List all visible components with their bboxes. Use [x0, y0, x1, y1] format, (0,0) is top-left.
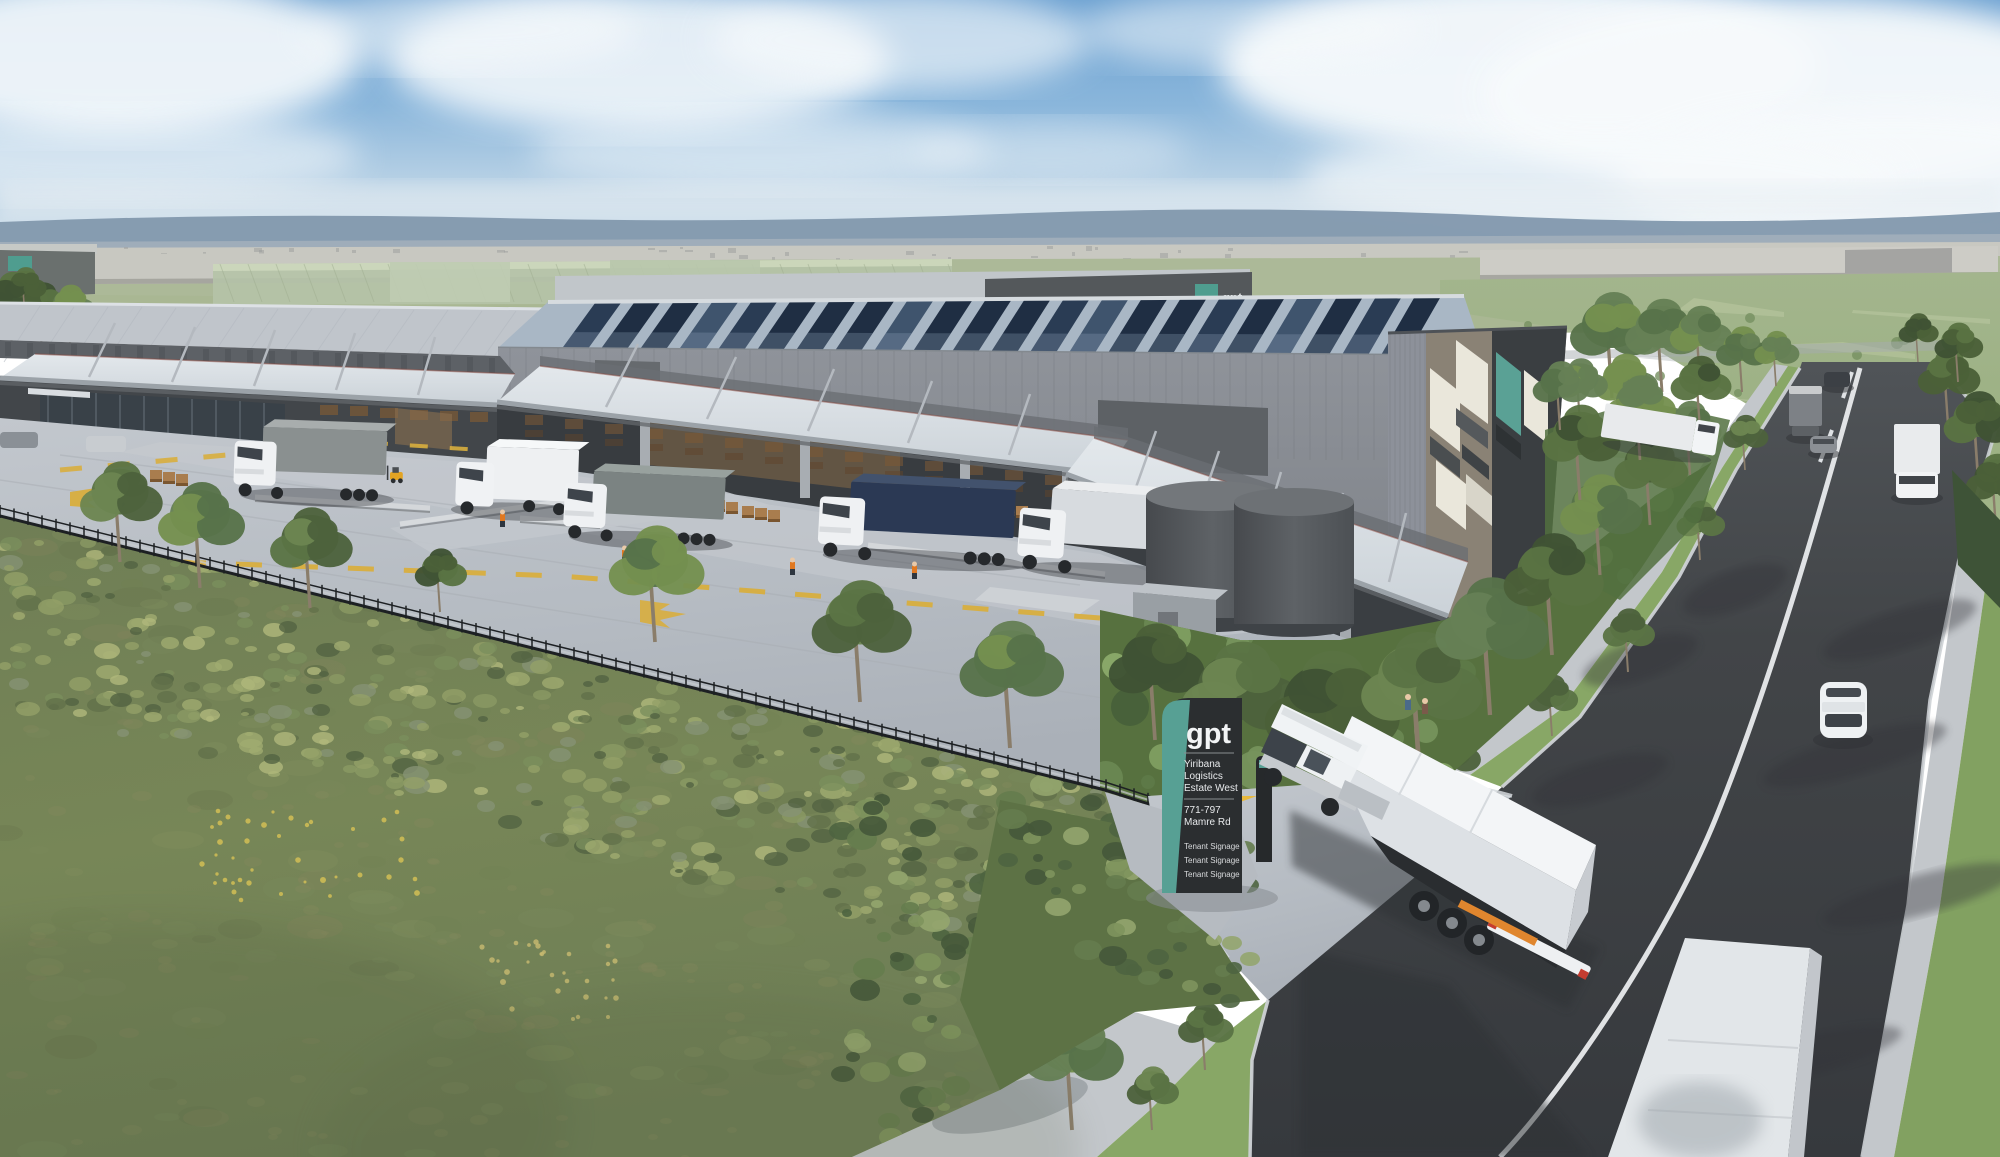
svg-text:Estate West: Estate West — [1184, 783, 1238, 794]
svg-text:Tenant Signage: Tenant Signage — [1184, 842, 1240, 851]
svg-text:Tenant Signage: Tenant Signage — [1184, 870, 1240, 879]
svg-text:771-797: 771-797 — [1184, 805, 1221, 816]
svg-text:Yiribana: Yiribana — [1184, 759, 1221, 770]
svg-text:Logistics: Logistics — [1184, 771, 1223, 782]
svg-text:Tenant Signage: Tenant Signage — [1184, 856, 1240, 865]
svg-text:Mamre Rd: Mamre Rd — [1184, 817, 1231, 828]
svg-text:gpt: gpt — [1186, 718, 1231, 750]
